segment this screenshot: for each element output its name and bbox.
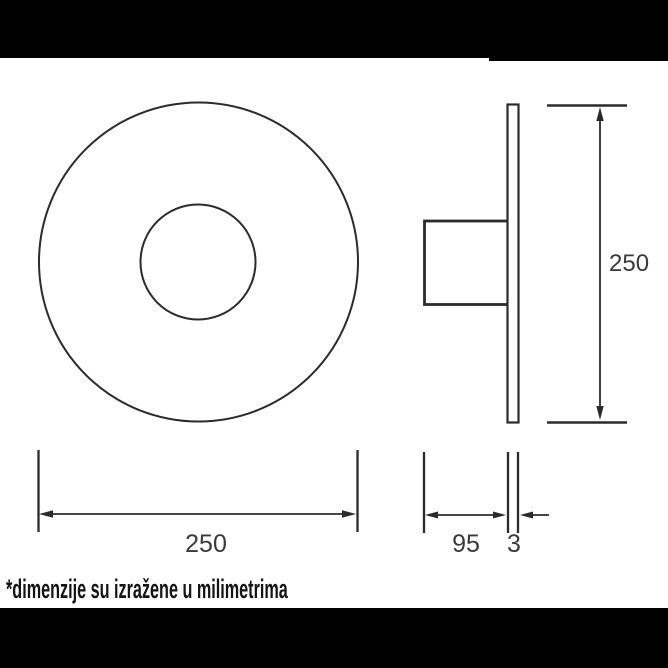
front-width-value: 250 — [185, 530, 227, 558]
side-height-value: 250 — [609, 250, 649, 277]
units-note: *dimenzije su izražene u milimetrima — [6, 576, 288, 603]
front-outer-circle — [39, 103, 358, 422]
front-view — [39, 103, 358, 422]
side-mounting-plate — [508, 105, 519, 423]
arrowhead-up-icon — [596, 107, 603, 121]
dimension-plate-thickness — [518, 452, 549, 533]
arrowhead-left-icon — [425, 512, 438, 519]
side-housing-box — [425, 221, 509, 305]
technical-drawing-canvas: 250 95 3 250 — [0, 0, 668, 668]
dimension-side-depth — [424, 452, 508, 533]
arrowhead-right-icon — [342, 510, 356, 517]
plate-thickness-value: 3 — [507, 530, 521, 558]
side-view — [425, 105, 519, 423]
footer-bar — [0, 608, 668, 668]
page: 250 95 3 250 *dimenzije su izražene u mi… — [0, 0, 668, 668]
header-bar-step — [489, 0, 668, 61]
front-inner-circle — [141, 205, 256, 320]
arrowhead-left-icon — [520, 512, 533, 519]
arrowhead-down-icon — [596, 406, 603, 420]
dimension-front-width — [39, 450, 358, 532]
arrowhead-right-icon — [493, 512, 506, 519]
arrowhead-left-icon — [39, 510, 53, 517]
side-depth-value: 95 — [452, 530, 480, 558]
